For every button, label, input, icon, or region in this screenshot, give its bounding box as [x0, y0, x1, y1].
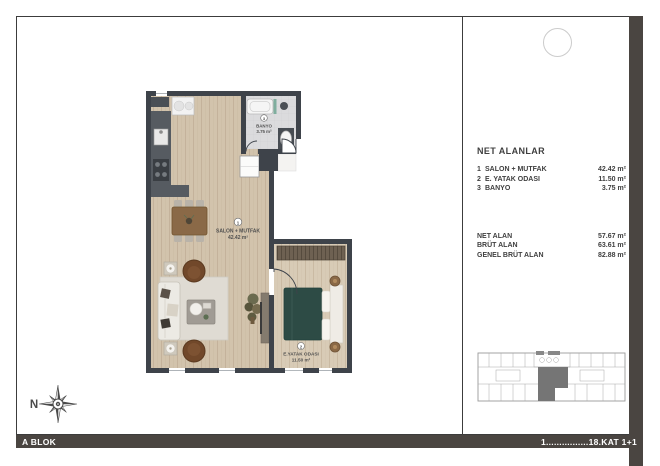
armchair-top: [183, 260, 205, 282]
room-index: 1: [477, 165, 485, 175]
building-key-plan: [476, 350, 628, 408]
legend-totals: NET ALAN 57.67 m² BRÜT ALAN 63.61 m² GEN…: [477, 232, 626, 261]
sofa: [158, 282, 180, 340]
total-value: 57.67 m²: [598, 232, 626, 242]
legend-room-row: 2 E. YATAK ODASI 11.50 m²: [477, 175, 626, 185]
entry-landing: [278, 154, 296, 171]
right-edge-bar: [629, 16, 643, 466]
armchair-bottom: [183, 340, 205, 362]
salon-name: SALON + MUTFAK: [216, 229, 260, 235]
hall-closet: [240, 156, 259, 177]
total-label: NET ALAN: [477, 232, 598, 242]
legend-room-row: 1 SALON + MUTFAK 42.42 m²: [477, 165, 626, 175]
wardrobe: [277, 246, 345, 260]
room-area: 42.42 m²: [598, 165, 626, 175]
block-label: A BLOK: [22, 437, 56, 447]
total-row: GENEL BRÜT ALAN 82.88 m²: [477, 251, 626, 261]
bed-duvet: [284, 288, 322, 340]
legend-room-row: 3 BANYO 3.75 m²: [477, 184, 626, 194]
tv-unit: [260, 293, 269, 343]
compass-north-label: N: [30, 399, 38, 411]
room-name: SALON + MUTFAK: [485, 165, 598, 175]
title-bar: A BLOK 1................18.KAT 1+1: [16, 435, 643, 448]
bedroom-area: 11.50 m²: [292, 358, 311, 363]
side-table-bottom: [164, 342, 177, 355]
dining-table: [172, 200, 207, 242]
info-panel: NET ALANLAR 1 SALON + MUTFAK 42.42 m² 2 …: [462, 16, 630, 435]
legend-title: NET ALANLAR: [477, 146, 626, 156]
pillow-1: [322, 291, 330, 312]
bedroom-name: E.YATAK ODASI: [283, 352, 319, 357]
area-legend: NET ALANLAR 1 SALON + MUTFAK 42.42 m² 2 …: [477, 146, 626, 261]
total-row: NET ALAN 57.67 m²: [477, 232, 626, 242]
floor-range-label: 1................18.KAT 1+1: [541, 437, 637, 447]
room-index: 3: [477, 184, 485, 194]
plan-area-frame: 1 SALON + MUTFAK 42.42 m² 3 BANYO 3.75 m…: [16, 16, 463, 435]
coffee-table: [187, 300, 215, 324]
floor-plan-drawing: 1 SALON + MUTFAK 42.42 m² 3 BANYO 3.75 m…: [17, 17, 461, 433]
room-area: 11.50 m²: [598, 175, 626, 185]
side-table-top: [164, 262, 177, 275]
shower-head: [280, 102, 288, 110]
bath-name: BANYO: [256, 124, 272, 129]
compass-rose: N: [30, 385, 77, 423]
total-value: 63.61 m²: [598, 241, 626, 251]
total-value: 82.88 m²: [598, 251, 626, 261]
pillow-2: [322, 319, 330, 340]
room-name: BANYO: [485, 184, 602, 194]
total-row: BRÜT ALAN 63.61 m²: [477, 241, 626, 251]
floorplan-sheet: 1 SALON + MUTFAK 42.42 m² 3 BANYO 3.75 m…: [0, 0, 660, 466]
room-name: E. YATAK ODASI: [485, 175, 598, 185]
bath-mat: [274, 99, 277, 114]
logo-circle: [543, 28, 572, 57]
total-label: BRÜT ALAN: [477, 241, 598, 251]
total-label: GENEL BRÜT ALAN: [477, 251, 598, 261]
bed-headboard: [330, 285, 343, 343]
bath-area: 3.75 m²: [256, 129, 272, 134]
room-index: 2: [477, 175, 485, 185]
salon-area: 42.42 m²: [228, 235, 248, 241]
room-area: 3.75 m²: [602, 184, 626, 194]
